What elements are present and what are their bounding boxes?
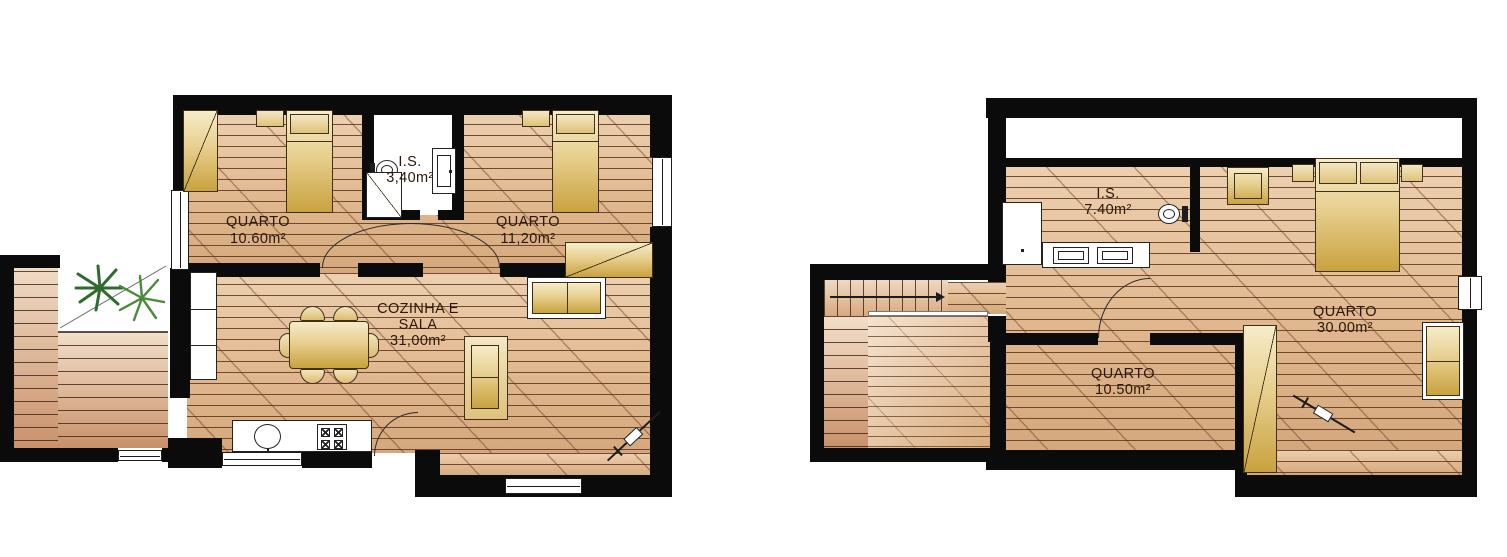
- wall: [1462, 98, 1477, 276]
- wardrobe: [183, 110, 218, 192]
- wall: [990, 342, 1006, 450]
- room-label: QUARTO: [1285, 305, 1405, 321]
- terrace-deck: [58, 332, 168, 448]
- nightstand: [1292, 164, 1314, 182]
- sideboard: [527, 277, 606, 319]
- stove-icon: [317, 424, 347, 450]
- room-label: QUARTO: [198, 215, 318, 231]
- window: [505, 478, 582, 494]
- bed-double: [1315, 158, 1400, 272]
- wall: [810, 448, 992, 462]
- plants-icon: [58, 258, 168, 332]
- landing-rail: [868, 311, 988, 316]
- vanity-counter: [1042, 242, 1150, 268]
- stair-flight-left: [824, 316, 868, 448]
- room-label: SALA: [358, 318, 478, 334]
- room-area: 3,40m²: [376, 171, 444, 187]
- toilet-tank: [1182, 206, 1188, 222]
- room-label: COZINHA E: [358, 302, 478, 318]
- wall: [810, 264, 992, 280]
- room-area: 7.40m²: [1074, 203, 1142, 219]
- room-area: 31,00m²: [358, 334, 478, 350]
- vanity-sink: [1097, 247, 1133, 264]
- stair-direction-line: [830, 296, 936, 298]
- wall: [1235, 475, 1477, 497]
- wall: [1462, 310, 1477, 497]
- kitchen-counter: [232, 420, 372, 452]
- window: [222, 452, 302, 466]
- stair-landing-floor: [868, 316, 990, 448]
- room-area: 10.50m²: [1063, 383, 1183, 399]
- room-area: 30.00m²: [1285, 321, 1405, 337]
- wall: [1190, 158, 1200, 252]
- stool-table: [1227, 167, 1269, 205]
- wall: [302, 450, 372, 468]
- pillow: [1360, 162, 1398, 184]
- terrace-steps: [14, 258, 58, 448]
- wall: [986, 98, 1477, 118]
- nightstand: [1401, 164, 1423, 182]
- stair-arrival-floor: [948, 282, 1006, 314]
- floor-plan-drawing: QUARTO 10.60m² I.S. 3,40m² QUARTO 11,20m…: [0, 0, 1507, 557]
- bed-single: [286, 110, 333, 213]
- room-label: I.S.: [1078, 187, 1138, 203]
- wall: [170, 268, 190, 398]
- wall: [988, 316, 1006, 342]
- dresser: [1422, 322, 1464, 400]
- pillow: [1319, 162, 1357, 184]
- stair-arrow-icon: [936, 292, 945, 302]
- kitchen-sink-icon: [254, 424, 281, 449]
- room-area: 10.60m²: [198, 232, 318, 248]
- pillow: [290, 114, 329, 134]
- dresser-drawers: [1426, 326, 1460, 396]
- nightstand: [256, 110, 284, 127]
- wall: [650, 227, 672, 497]
- wall: [1006, 333, 1098, 345]
- linen-closet: [1002, 202, 1042, 265]
- room-label: I.S.: [380, 155, 440, 171]
- wall: [438, 210, 464, 220]
- vanity-sink: [1053, 247, 1089, 264]
- window: [118, 450, 162, 461]
- bed-single: [552, 110, 599, 213]
- room-area: 11,20m²: [468, 232, 588, 248]
- wall: [810, 264, 824, 462]
- sofa-cushions: [471, 345, 499, 409]
- room-label: QUARTO: [468, 215, 588, 231]
- wall: [0, 448, 118, 462]
- planter: [58, 258, 168, 332]
- sideboard-doors: [532, 282, 601, 314]
- nightstand: [522, 110, 550, 127]
- wall: [0, 255, 14, 462]
- dining-table: [289, 321, 369, 369]
- pillow: [556, 114, 595, 134]
- wall: [358, 263, 423, 277]
- window: [652, 157, 672, 227]
- wall: [986, 450, 1243, 470]
- window: [1458, 276, 1482, 310]
- wardrobe: [1243, 325, 1277, 473]
- wall: [162, 448, 190, 462]
- room-label: QUARTO: [1063, 367, 1183, 383]
- hall-cabinet: [190, 272, 217, 380]
- wall: [185, 450, 222, 468]
- wall: [0, 255, 60, 268]
- wall: [650, 95, 672, 157]
- toilet-icon: [1158, 204, 1180, 224]
- wall: [1150, 333, 1243, 345]
- window: [171, 190, 189, 270]
